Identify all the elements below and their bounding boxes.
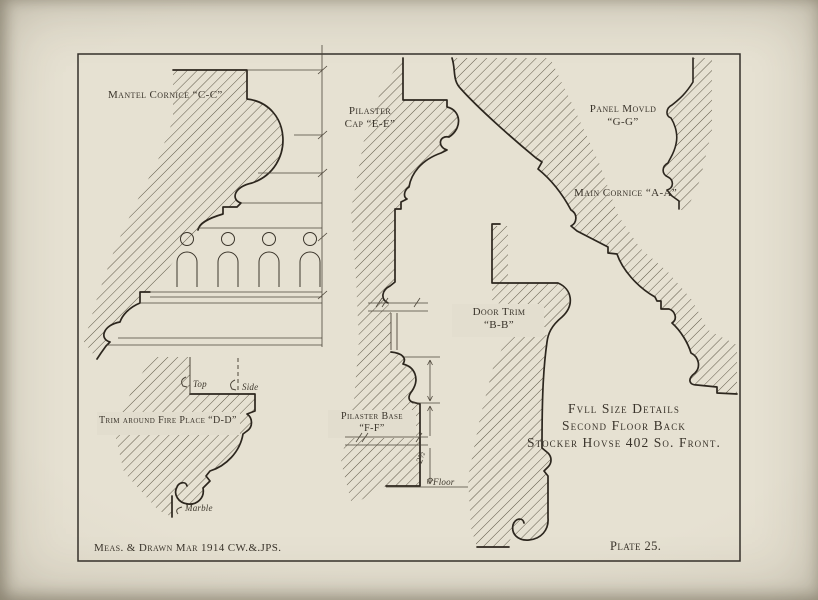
- pilaster-cap-label-line1: Pilaster: [332, 105, 408, 118]
- annotation-side: Side: [242, 382, 258, 393]
- frieze-beads-and-flutes: [177, 233, 320, 288]
- annotation-top: Top: [193, 379, 207, 390]
- panel-mould-label: Panel Movld “G-G”: [576, 103, 670, 129]
- title-line2: Second Floor Back: [512, 417, 736, 434]
- fireplace-trim-label: Trim around Fire Place “D-D”: [99, 415, 237, 427]
- side-pointer: [231, 380, 236, 390]
- annotation-floor: Floor: [433, 477, 455, 488]
- plate-number: Plate 25.: [610, 539, 661, 554]
- annotation-marble: Marble: [185, 503, 213, 514]
- pilaster-base-label: Pilaster Base “F-F”: [328, 411, 416, 435]
- scanned-plate-page: Mantel Cornice “C-C” Pilaster Cap “E-E” …: [0, 0, 818, 600]
- pilaster-base-label-line1: Pilaster Base: [328, 411, 416, 423]
- door-trim-label-line2: “B-B”: [455, 319, 543, 332]
- main-cornice-label: Main Cornice “A-A”: [574, 187, 677, 200]
- title-line1: Fvll Size Details: [512, 400, 736, 417]
- pilaster-cap-label: Pilaster Cap “E-E”: [332, 105, 408, 131]
- door-trim-label: Door Trim “B-B”: [455, 306, 543, 332]
- pilaster-base-label-line2: “F-F”: [328, 423, 416, 435]
- credit-line: Meas. & Drawn Mar 1914 CW.&.JPS.: [94, 542, 281, 555]
- mantel-cornice-label: Mantel Cornice “C-C”: [108, 89, 223, 102]
- marble-pointer: [177, 507, 182, 514]
- panel-mould-label-line1: Panel Movld: [576, 103, 670, 116]
- door-trim-drawing: [452, 224, 570, 547]
- title-line3: Stocker Hovse 402 So. Front.: [512, 434, 736, 451]
- fireplace-trim-drawing: [97, 357, 255, 517]
- panel-mould-label-line2: “G-G”: [576, 116, 670, 129]
- door-trim-label-line1: Door Trim: [455, 306, 543, 319]
- pilaster-cap-label-line2: Cap “E-E”: [332, 118, 408, 131]
- title-block: Fvll Size Details Second Floor Back Stoc…: [512, 400, 736, 451]
